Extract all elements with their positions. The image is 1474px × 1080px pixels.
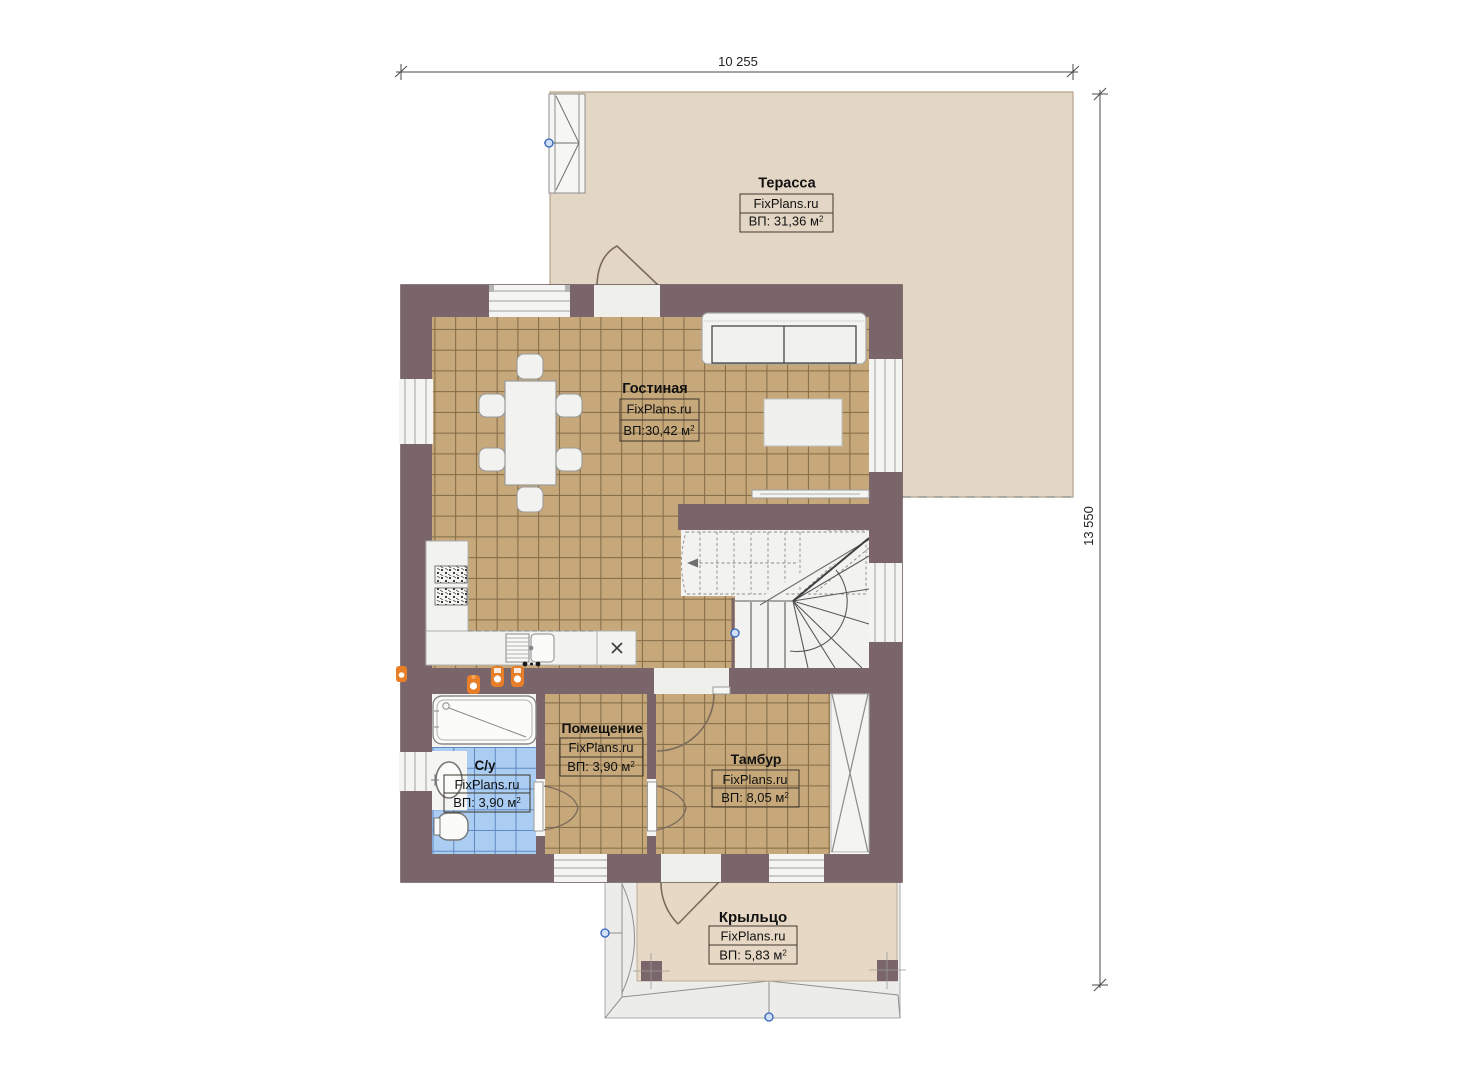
svg-text:ВП:30,42 м2: ВП:30,42 м2 (623, 423, 695, 438)
svg-text:ВП: 31,36 м2: ВП: 31,36 м2 (749, 214, 824, 229)
svg-text:10 255: 10 255 (718, 54, 758, 69)
svg-text:Тамбур: Тамбур (731, 751, 782, 767)
svg-text:С/у: С/у (474, 758, 496, 773)
svg-text:ВП: 8,05 м2: ВП: 8,05 м2 (721, 790, 789, 805)
svg-text:ВП: 3,90 м2: ВП: 3,90 м2 (567, 759, 635, 774)
svg-text:ВП: 3,90 м2: ВП: 3,90 м2 (453, 795, 521, 810)
svg-text:FixPlans.ru: FixPlans.ru (753, 196, 818, 211)
svg-text:FixPlans.ru: FixPlans.ru (454, 777, 519, 792)
svg-text:Крыльцо: Крыльцо (719, 909, 787, 926)
svg-text:Терасса: Терасса (758, 176, 816, 192)
svg-text:FixPlans.ru: FixPlans.ru (568, 740, 633, 755)
svg-text:Помещение: Помещение (561, 720, 642, 736)
svg-text:13 550: 13 550 (1081, 506, 1096, 546)
svg-text:FixPlans.ru: FixPlans.ru (626, 402, 691, 417)
svg-text:FixPlans.ru: FixPlans.ru (722, 772, 787, 787)
svg-text:ВП: 5,83 м2: ВП: 5,83 м2 (719, 948, 787, 963)
svg-text:Гостиная: Гостиная (622, 381, 688, 397)
svg-text:FixPlans.ru: FixPlans.ru (720, 929, 785, 944)
